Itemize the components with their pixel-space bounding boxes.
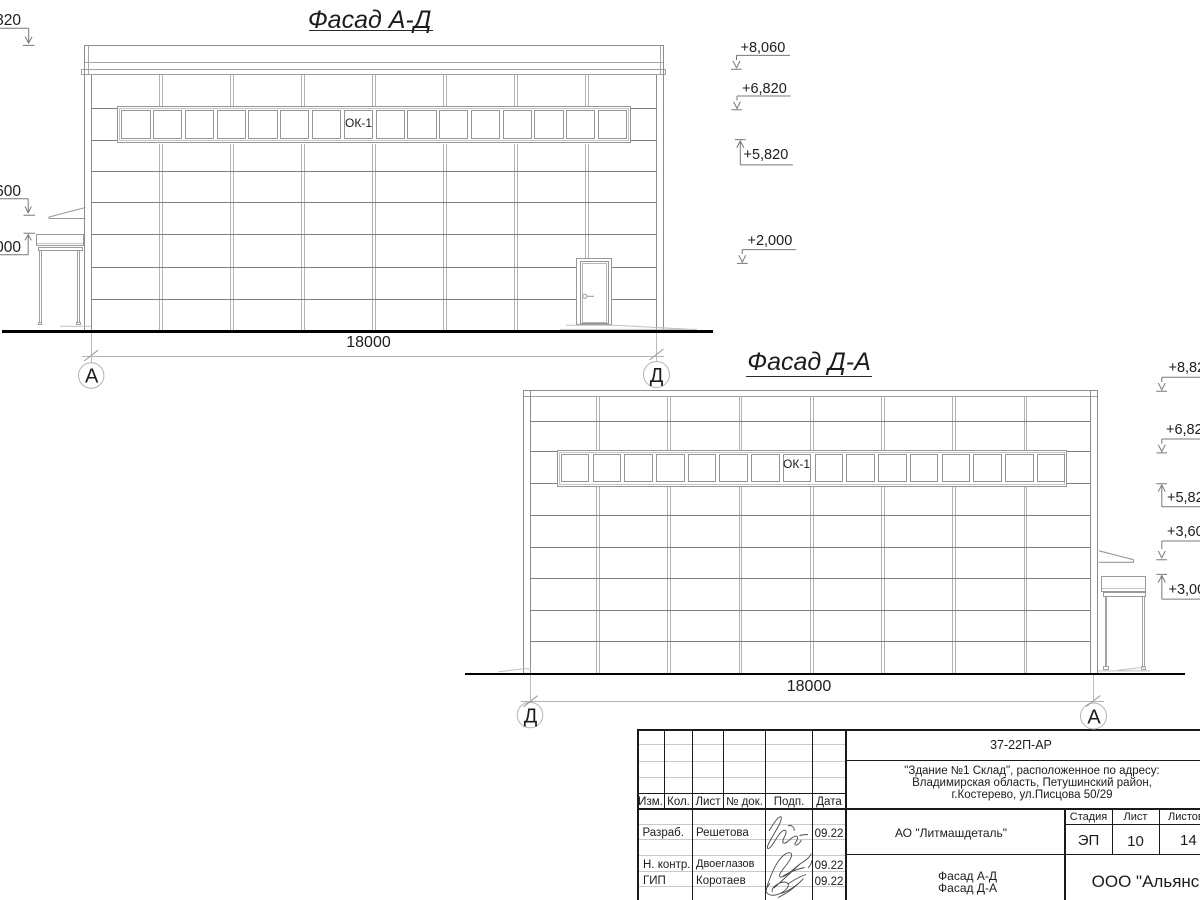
svg-text:А: А <box>1087 706 1101 728</box>
svg-text:Д: Д <box>650 365 664 387</box>
svg-text:Д: Д <box>524 705 538 727</box>
svg-text:А: А <box>85 365 99 387</box>
